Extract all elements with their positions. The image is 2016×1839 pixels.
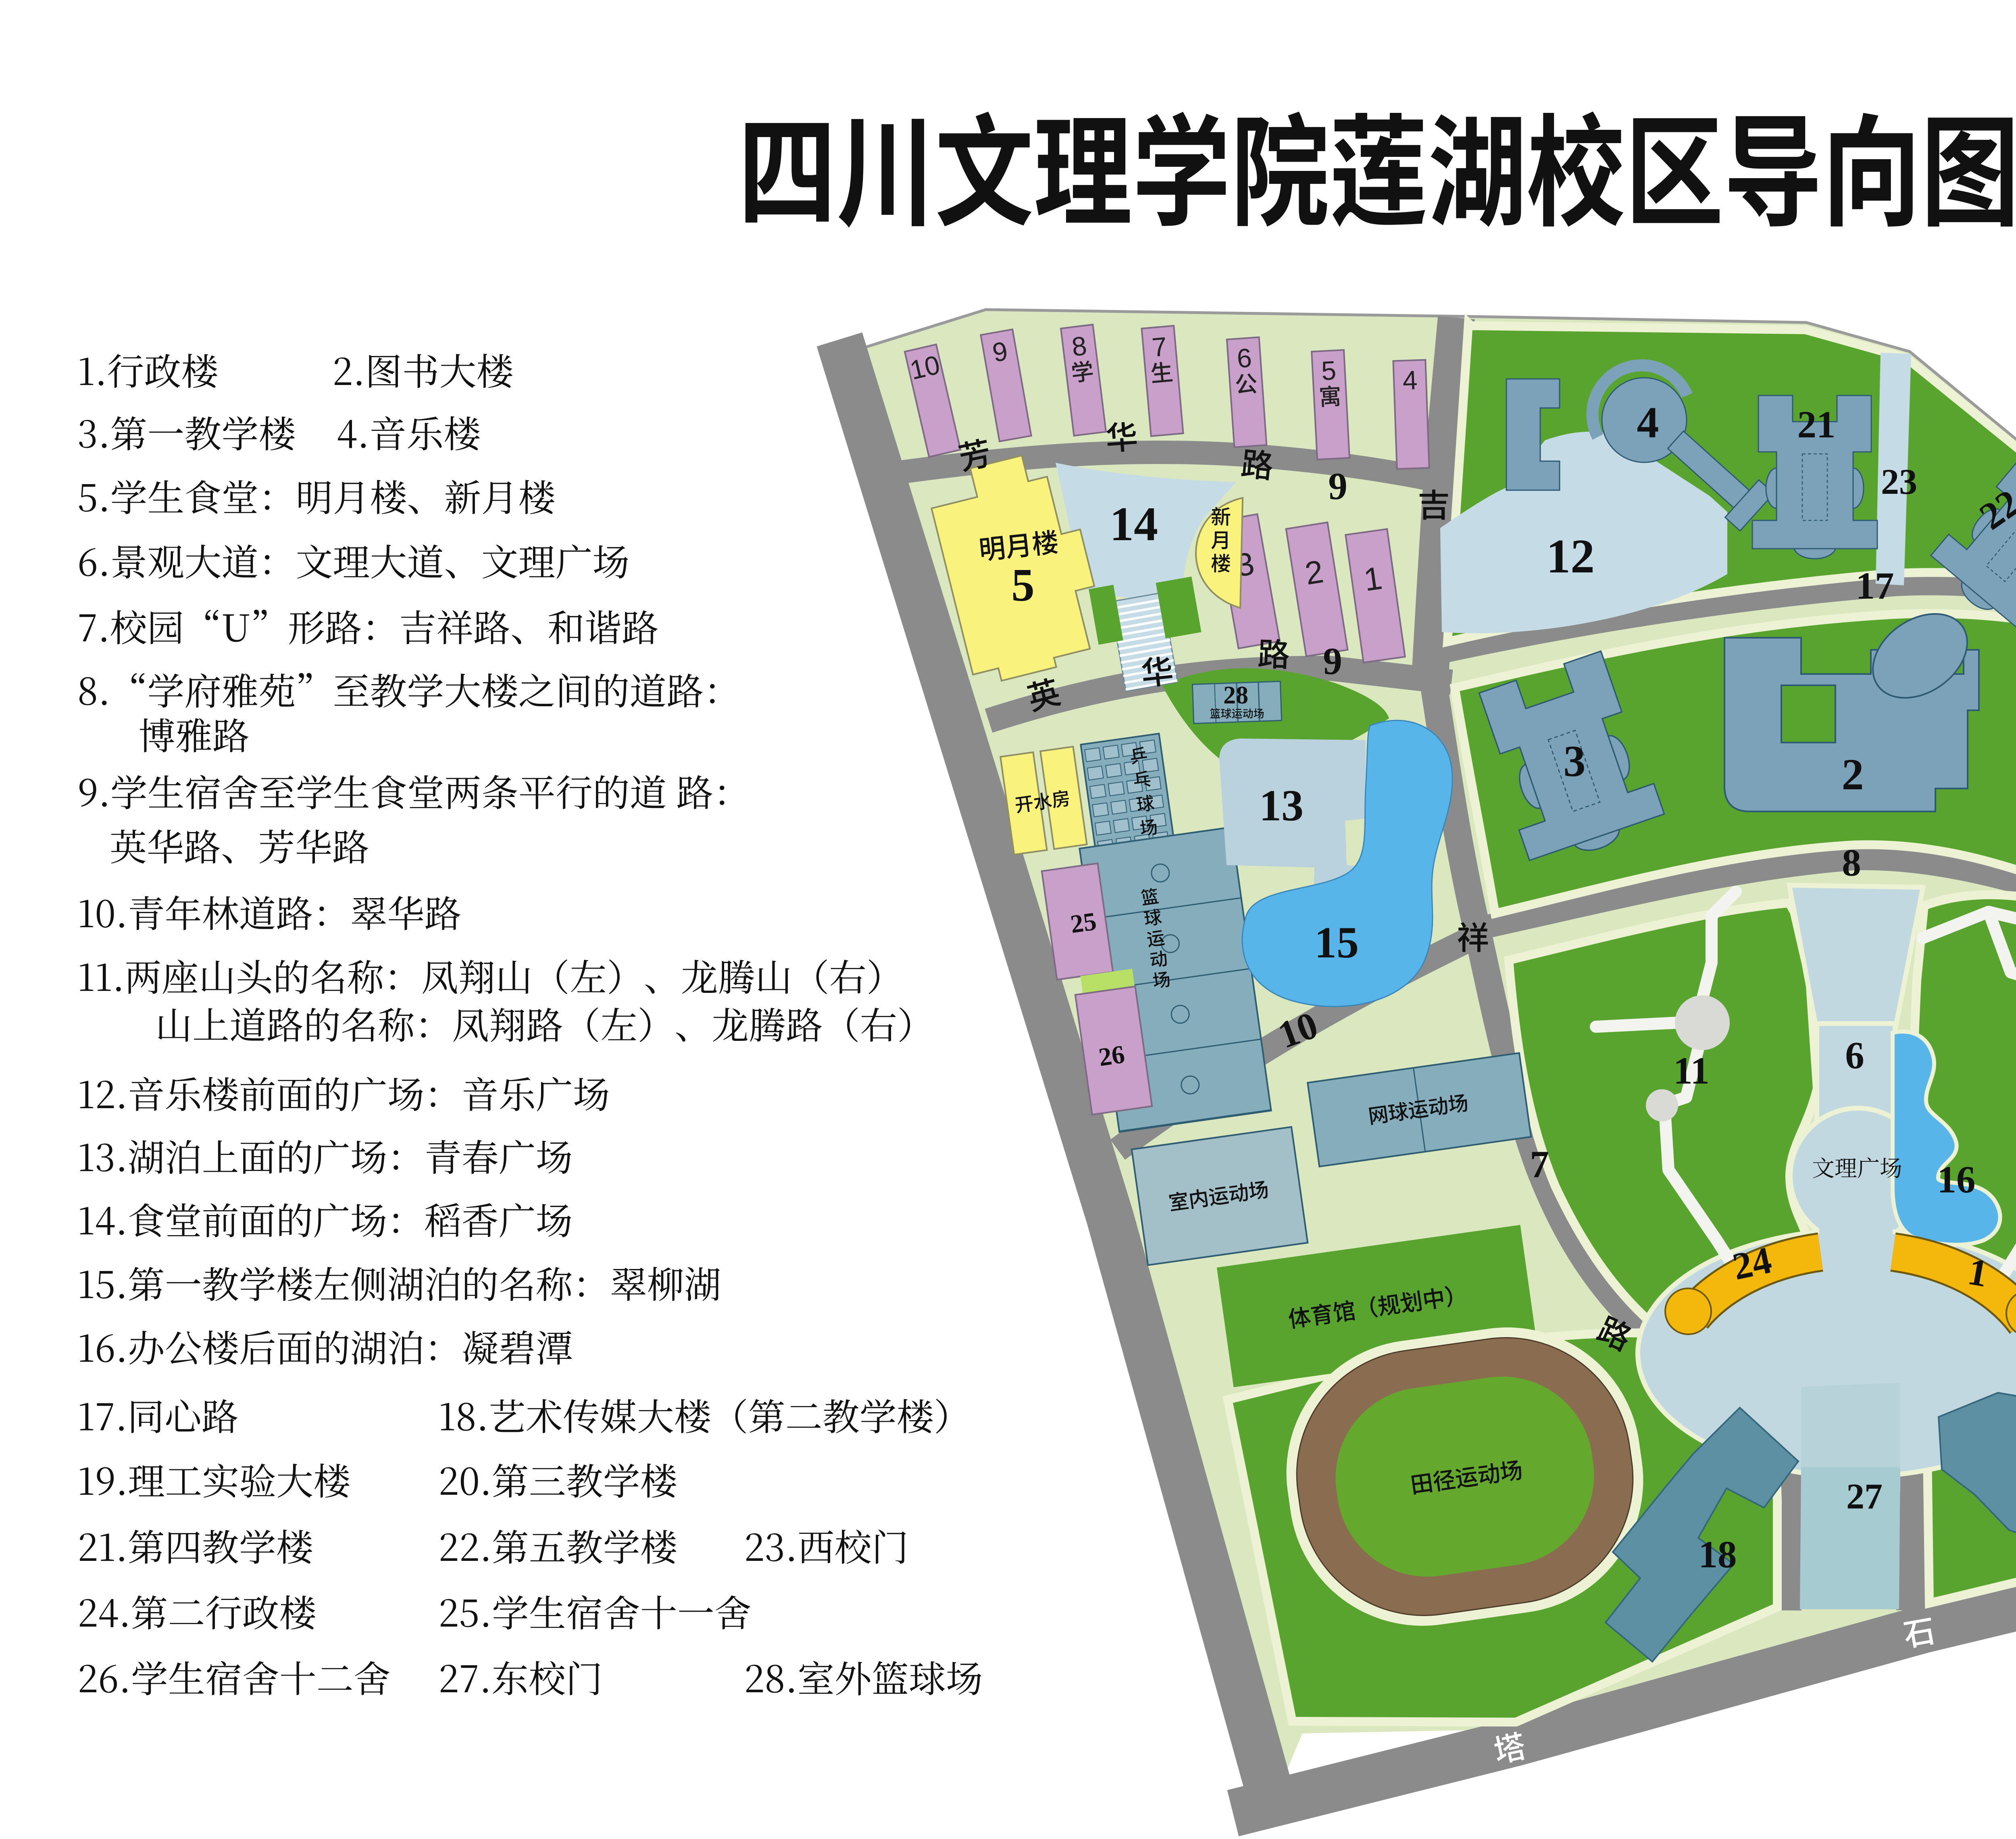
svg-text:18: 18 <box>1699 1533 1737 1576</box>
svg-text:学: 学 <box>1069 353 1095 388</box>
svg-text:场: 场 <box>1151 965 1172 993</box>
svg-text:19.理工实验大楼: 19.理工实验大楼 <box>77 1452 350 1506</box>
svg-text:4.音乐楼: 4.音乐楼 <box>337 405 481 458</box>
svg-text:8: 8 <box>1842 841 1861 884</box>
svg-text:13.湖泊上面的广场：青春广场: 13.湖泊上面的广场：青春广场 <box>77 1129 573 1182</box>
svg-text:15.第一教学楼左侧湖泊的名称：翠柳湖: 15.第一教学楼左侧湖泊的名称：翠柳湖 <box>77 1256 721 1309</box>
svg-text:华: 华 <box>1139 645 1176 695</box>
svg-text:13: 13 <box>1259 781 1304 830</box>
svg-text:9: 9 <box>1328 465 1347 508</box>
svg-text:11: 11 <box>1673 1049 1710 1092</box>
svg-text:26: 26 <box>1097 1040 1126 1071</box>
svg-text:22.第五教学楼: 22.第五教学楼 <box>438 1519 677 1572</box>
svg-text:路: 路 <box>1257 628 1291 676</box>
svg-text:24.第二行政楼: 24.第二行政楼 <box>77 1584 316 1637</box>
svg-text:公: 公 <box>1234 366 1259 400</box>
svg-text:5.学生食堂：明月楼、新月楼: 5.学生食堂：明月楼、新月楼 <box>77 469 555 522</box>
svg-text:路: 路 <box>1239 438 1276 488</box>
svg-text:15: 15 <box>1314 918 1359 967</box>
svg-text:17.同心路: 17.同心路 <box>77 1388 239 1441</box>
svg-text:21.第四教学楼: 21.第四教学楼 <box>77 1519 313 1572</box>
svg-text:7.校园“U”形路：吉祥路、和谐路: 7.校园“U”形路：吉祥路、和谐路 <box>77 599 659 652</box>
svg-text:17: 17 <box>1856 564 1894 607</box>
svg-text:寓: 寓 <box>1318 379 1342 412</box>
svg-text:祥: 祥 <box>1457 912 1489 959</box>
svg-text:篮球运动场: 篮球运动场 <box>1210 705 1264 721</box>
svg-text:27.东校门: 27.东校门 <box>438 1650 603 1703</box>
svg-text:14: 14 <box>1110 497 1158 551</box>
svg-text:16: 16 <box>1937 1158 1976 1201</box>
svg-text:20.第三教学楼: 20.第三教学楼 <box>438 1452 677 1506</box>
svg-text:25.学生宿舍十一舍: 25.学生宿舍十一舍 <box>438 1584 752 1637</box>
svg-text:吉: 吉 <box>1418 480 1450 526</box>
svg-text:27: 27 <box>1846 1477 1883 1517</box>
svg-text:12.音乐楼前面的广场：音乐广场: 12.音乐楼前面的广场：音乐广场 <box>77 1066 610 1119</box>
svg-text:9.学生宿舍至学生食堂两条平行的道 路：: 9.学生宿舍至学生食堂两条平行的道 路： <box>77 764 750 817</box>
svg-text:4: 4 <box>1402 365 1418 395</box>
svg-text:23: 23 <box>1881 462 1917 502</box>
svg-text:9: 9 <box>1323 640 1342 682</box>
svg-text:文理广场: 文理广场 <box>1812 1151 1902 1183</box>
svg-text:6: 6 <box>1845 1034 1864 1077</box>
svg-text:3.第一教学楼: 3.第一教学楼 <box>77 405 296 458</box>
svg-text:1.行政楼: 1.行政楼 <box>77 343 218 396</box>
svg-text:乒: 乒 <box>1128 741 1149 769</box>
svg-text:18.艺术传媒大楼（第二教学楼）: 18.艺术传媒大楼（第二教学楼） <box>438 1388 971 1441</box>
svg-text:6.景观大道：文理大道、文理广场: 6.景观大道：文理大道、文理广场 <box>77 533 629 587</box>
svg-text:26.学生宿舍十二舍: 26.学生宿舍十二舍 <box>77 1650 391 1703</box>
svg-text:7: 7 <box>1530 1143 1549 1186</box>
svg-text:23.西校门: 23.西校门 <box>744 1519 909 1572</box>
svg-text:21: 21 <box>1797 403 1836 446</box>
svg-text:5: 5 <box>1011 560 1035 611</box>
svg-text:球: 球 <box>1135 788 1156 817</box>
svg-text:11.两座山头的名称：凤翔山（左）、龙腾山（右）: 11.两座山头的名称：凤翔山（左）、龙腾山（右） <box>77 949 904 1002</box>
svg-text:28.室外篮球场: 28.室外篮球场 <box>744 1650 983 1703</box>
svg-text:10.青年林道路：翠华路: 10.青年林道路：翠华路 <box>77 885 462 938</box>
svg-text:2.图书大楼: 2.图书大楼 <box>332 343 513 396</box>
svg-text:英华路、芳华路: 英华路、芳华路 <box>110 818 369 872</box>
svg-text:16.办公楼后面的湖泊：凝碧潭: 16.办公楼后面的湖泊：凝碧潭 <box>77 1319 573 1373</box>
svg-text:2: 2 <box>1842 750 1864 799</box>
svg-text:乓: 乓 <box>1131 765 1152 793</box>
svg-text:四川文理学院莲湖校区导向图: 四川文理学院莲湖校区导向图 <box>738 75 2016 250</box>
svg-text:华: 华 <box>1104 411 1139 460</box>
svg-text:14.食堂前面的广场：稻香广场: 14.食堂前面的广场：稻香广场 <box>77 1192 573 1245</box>
svg-text:3: 3 <box>1564 736 1586 786</box>
svg-text:场: 场 <box>1138 813 1159 841</box>
svg-text:楼: 楼 <box>1211 548 1231 577</box>
svg-text:12: 12 <box>1546 529 1595 583</box>
svg-text:博雅路: 博雅路 <box>138 707 250 760</box>
svg-text:山上道路的名称：凤翔路（左）、龙腾路（右）: 山上道路的名称：凤翔路（左）、龙腾路（右） <box>155 996 934 1050</box>
svg-text:25: 25 <box>1068 907 1098 938</box>
svg-text:生: 生 <box>1149 354 1175 389</box>
svg-text:4: 4 <box>1637 398 1659 447</box>
